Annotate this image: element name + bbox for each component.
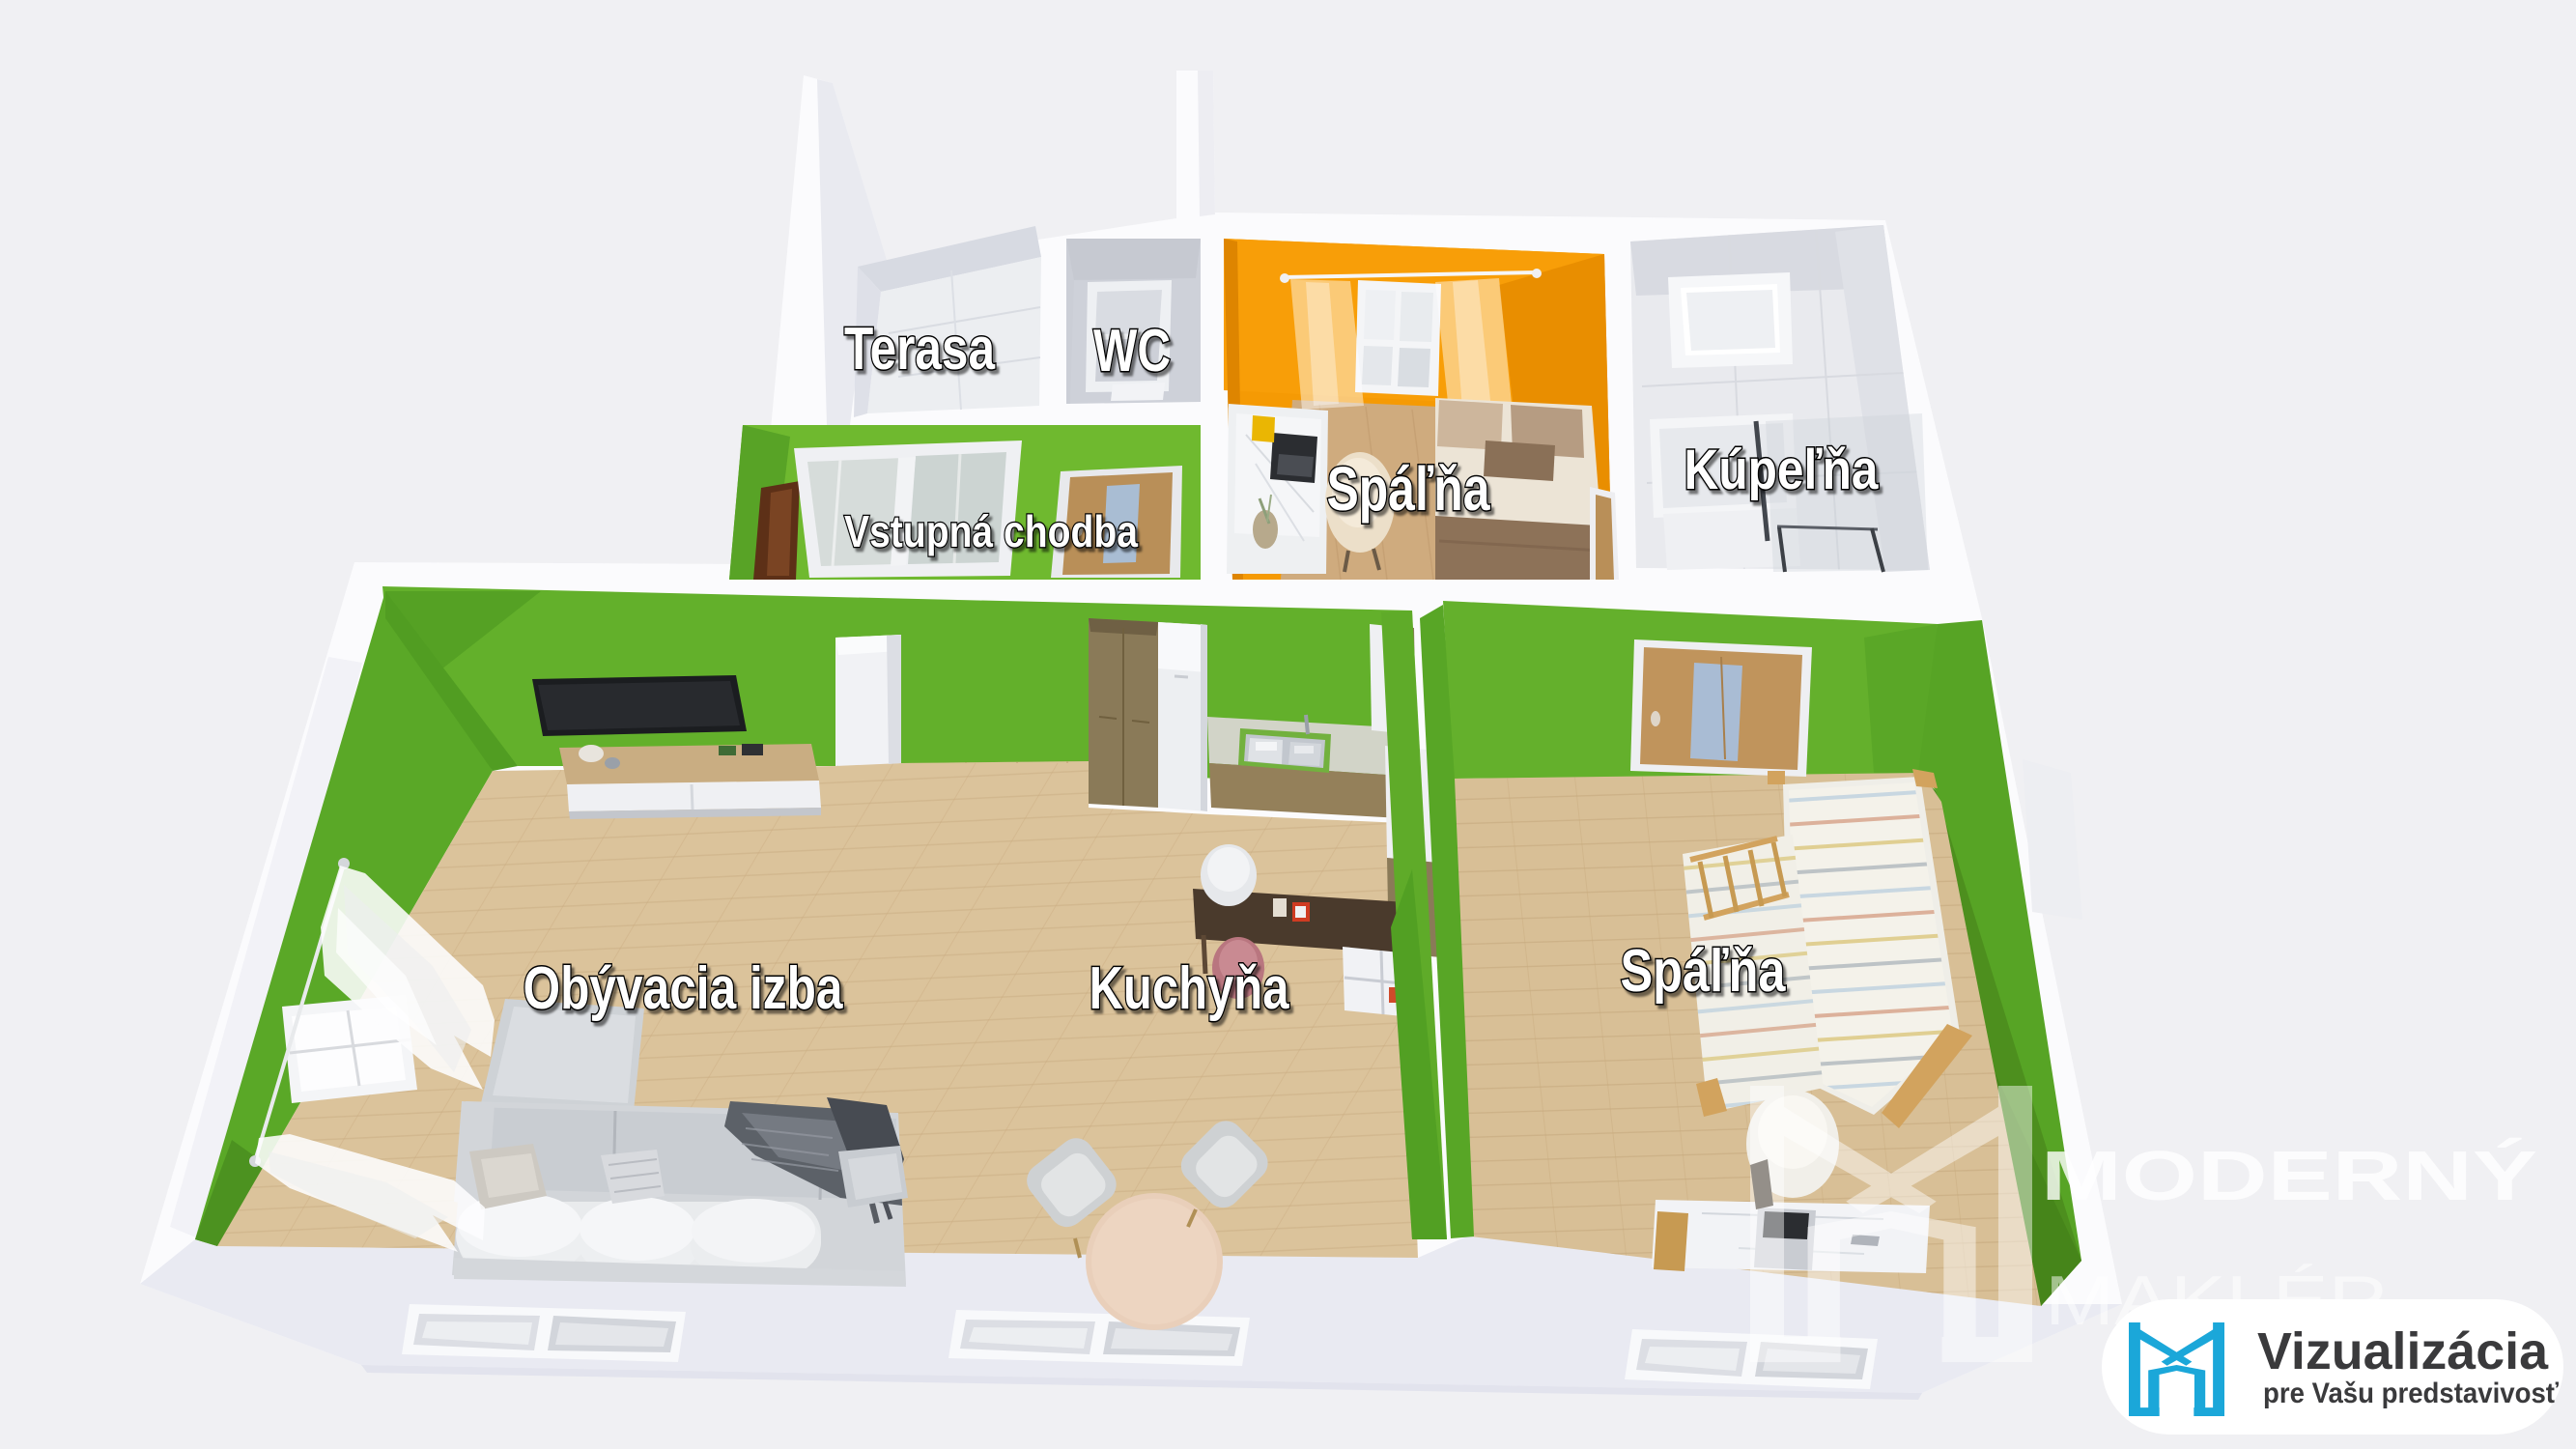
svg-text:Terasa: Terasa bbox=[844, 316, 995, 383]
svg-text:Vstupná chodba: Vstupná chodba bbox=[844, 506, 1138, 556]
svg-text:Spáľňa: Spáľňa bbox=[1327, 454, 1490, 524]
svg-text:Kuchyňa: Kuchyňa bbox=[1090, 955, 1289, 1022]
svg-text:Obývacia izba: Obývacia izba bbox=[524, 955, 843, 1022]
svg-text:MODERNÝ: MODERNÝ bbox=[2041, 1137, 2537, 1215]
svg-text:Vizualizácia: Vizualizácia bbox=[2257, 1322, 2549, 1380]
svg-text:WC: WC bbox=[1093, 318, 1171, 384]
svg-text:Kúpeľňa: Kúpeľňa bbox=[1684, 439, 1880, 501]
svg-text:Spáľňa: Spáľňa bbox=[1621, 938, 1786, 1005]
svg-text:pre Vašu predstavivosť: pre Vašu predstavivosť bbox=[2263, 1378, 2560, 1409]
